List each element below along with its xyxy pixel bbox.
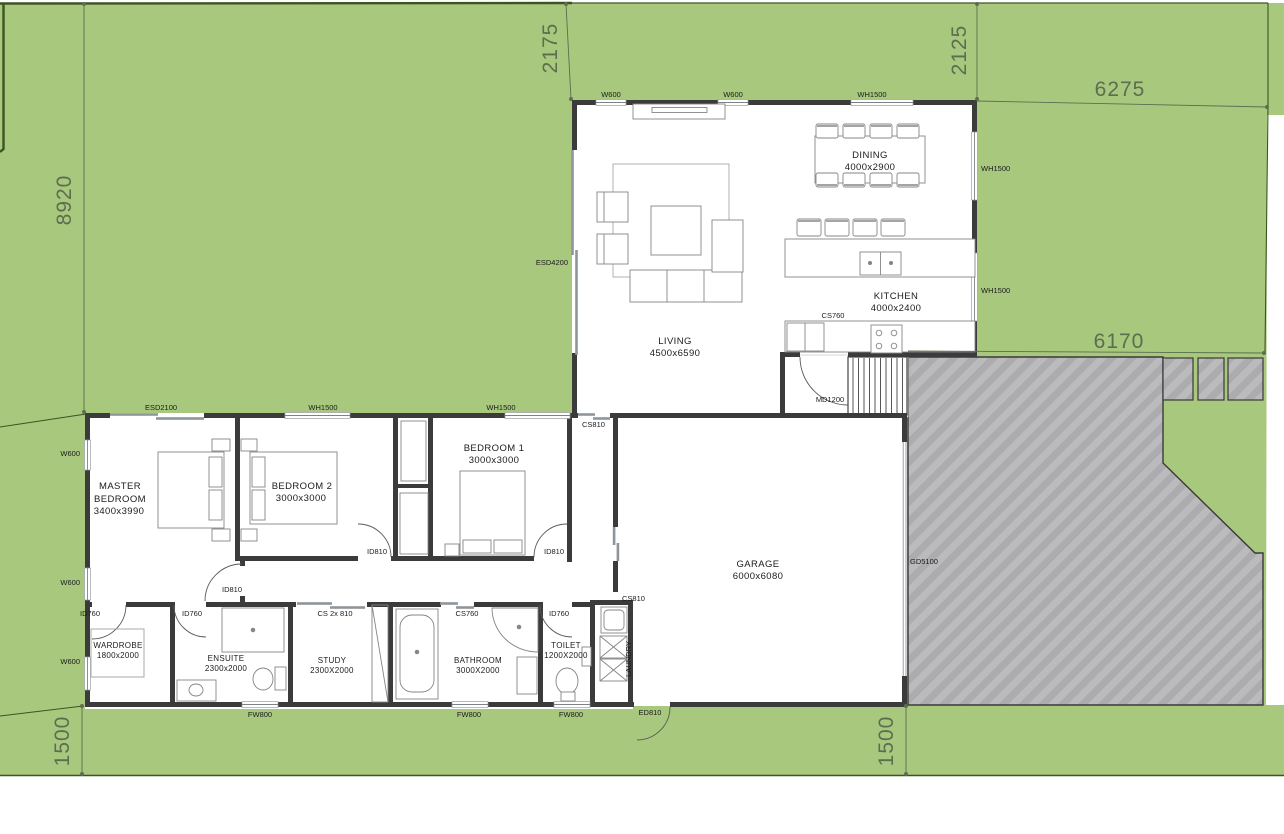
window-wh1500-east-a (972, 132, 978, 200)
room-master-line2: BEDROOM (94, 494, 146, 505)
side-table (241, 529, 257, 541)
pillow (209, 457, 222, 487)
driveway-pad-2 (1198, 358, 1224, 400)
label-w600-west-b: W600 (60, 578, 80, 587)
label-w600-top-b: W600 (723, 90, 743, 99)
label-cs760-kitchen: CS760 (822, 311, 845, 320)
label-cs2x810-study: CS 2x 810 (317, 609, 352, 618)
pillow (209, 490, 222, 520)
pillow (494, 540, 522, 553)
label-w600-west-c: W600 (60, 657, 80, 666)
sofa (630, 270, 742, 302)
window-wh1500-top (851, 100, 913, 106)
dim-8920: 8920 (53, 175, 76, 226)
room-garage-size: 6000x6080 (733, 571, 784, 582)
label-md1200: MD1200 (816, 395, 844, 404)
side-table (445, 544, 459, 556)
label-id810-bed1: ID810 (544, 547, 564, 556)
room-bathroom-name: BATHROOM (454, 656, 502, 665)
label-cs760-bathroom: CS760 (456, 609, 479, 618)
dim-1500-right: 1500 (875, 716, 898, 767)
label-ed810: ED810 (639, 708, 662, 717)
room-dining-name: DINING (852, 150, 888, 161)
wc-tank (561, 692, 575, 701)
room-living-name: LIVING (658, 336, 692, 347)
label-fw800-b: FW800 (457, 710, 481, 719)
room-bedroom1-name: BEDROOM 1 (464, 443, 525, 454)
window-fw800-b (452, 702, 488, 708)
room-wardrobe-name: WARDROBE (93, 641, 142, 650)
label-wh1500-east-a: WH1500 (981, 164, 1010, 173)
label-wh1500-top: WH1500 (857, 90, 886, 99)
armchair-2 (597, 234, 628, 264)
room-master-line1: MASTER (99, 481, 141, 492)
window-fw800-c (554, 702, 590, 708)
window-w600-west-b (85, 568, 91, 600)
wc-bowl (556, 668, 578, 694)
label-w600-top-a: W600 (601, 90, 621, 99)
label-gd5100: GD5100 (910, 557, 938, 566)
window-w600-top-a (596, 100, 626, 106)
driveway-pad-1 (1163, 358, 1193, 400)
room-ensuite-name: ENSUITE (208, 654, 245, 663)
label-cs810-hall: CS810 (582, 420, 605, 429)
label-id810-master: ID810 (222, 585, 242, 594)
armchair-1 (597, 192, 628, 222)
master-furniture (158, 439, 230, 541)
side-table (212, 529, 230, 541)
dim-1500-left: 1500 (51, 716, 74, 767)
window-fw800-a (242, 702, 278, 708)
laundry-fixtures (600, 607, 627, 681)
window-wh1500-bed2 (285, 413, 350, 419)
room-study-size: 2300X2000 (310, 666, 354, 675)
label-fw800-c: FW800 (559, 710, 583, 719)
coffee-table (651, 206, 701, 255)
room-kitchen-size: 4000x2400 (871, 303, 922, 314)
room-bedroom2-size: 3000x3000 (276, 493, 327, 504)
room-laundry-name: LAUNDRY (624, 641, 633, 677)
garage-door-gd5100 (902, 442, 907, 676)
label-w600-west-a: W600 (60, 449, 80, 458)
label-id760-ensuite: ID760 (182, 609, 202, 618)
label-wh1500-bed2: WH1500 (308, 403, 337, 412)
room-kitchen-name: KITCHEN (874, 291, 919, 302)
label-id810-bed2: ID810 (367, 547, 387, 556)
label-esd2100: ESD2100 (145, 403, 177, 412)
sofa-chaise (712, 220, 743, 272)
window-wh1500-bed1 (505, 413, 570, 419)
label-cs810-garage: CS810 (622, 594, 645, 603)
vanity (177, 680, 216, 701)
room-bathroom-size: 3000X2000 (456, 666, 500, 675)
room-living-size: 4500x6590 (650, 348, 701, 359)
pillow (252, 457, 265, 487)
room-garage-name: GARAGE (736, 559, 779, 570)
window-w600-west-a (85, 440, 91, 470)
floor-plan-drawing: 8920 2175 2125 6275 6170 1500 1500 W600 … (0, 0, 1284, 834)
pillow (463, 540, 491, 553)
dim-6275: 6275 (1095, 78, 1146, 101)
stairs (848, 357, 907, 415)
room-toilet-size: 1200X2000 (544, 651, 588, 660)
fridge (787, 323, 824, 351)
label-id760-wardrobe: ID760 (80, 609, 100, 618)
room-toilet-name: TOILET (551, 641, 581, 650)
floor-plan-page: 8920 2175 2125 6275 6170 1500 1500 W600 … (0, 0, 1284, 834)
dim-2125: 2125 (948, 25, 971, 76)
room-wardrobe-size: 1800x2000 (97, 651, 140, 660)
driveway-pad-3 (1228, 358, 1263, 400)
toilet-bowl (253, 668, 273, 690)
label-id760-toilet: ID760 (549, 609, 569, 618)
room-study-name: STUDY (318, 656, 347, 665)
label-wh1500-bed1: WH1500 (486, 403, 515, 412)
side-table (241, 439, 257, 451)
side-table (212, 439, 230, 451)
label-fw800-a: FW800 (248, 710, 272, 719)
room-bedroom2-name: BEDROOM 2 (272, 481, 333, 492)
dim-2175: 2175 (539, 23, 562, 74)
dim-6170: 6170 (1094, 330, 1145, 353)
label-wh1500-east-b: WH1500 (981, 286, 1010, 295)
label-esd4200: ESD4200 (536, 258, 568, 267)
window-w600-west-c (85, 657, 91, 690)
bath-vanity (517, 657, 537, 694)
room-dining-size: 4000x2900 (845, 162, 896, 173)
room-master-size: 3400x3990 (94, 506, 145, 517)
pillow (252, 490, 265, 520)
toilet-tank (275, 667, 286, 690)
cooktop (871, 325, 902, 353)
room-ensuite-size: 2300x2000 (205, 664, 248, 673)
room-bedroom1-size: 3000x3000 (469, 455, 520, 466)
